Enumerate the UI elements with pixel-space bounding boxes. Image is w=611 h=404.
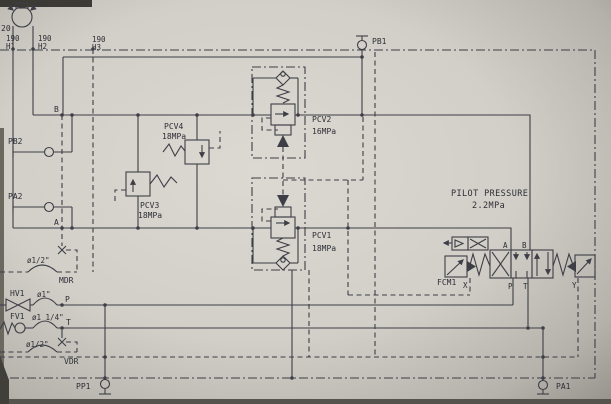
fitting-hv1-name: HV1 — [10, 289, 25, 298]
pilot-pressure-value: 2.2MPa — [472, 201, 505, 211]
fitting-fv1-size: ø1 1/4" — [32, 313, 64, 322]
pilot-pressure-title: PILOT PRESSURE — [451, 189, 528, 199]
port-pa2-label: PA2 — [8, 192, 23, 201]
fitting-fv1-name: FV1 — [10, 312, 25, 321]
port-pp1-label: PP1 — [76, 382, 91, 391]
hose-h2-id: H2 — [38, 42, 47, 51]
fcm1-port-a-label: A — [503, 241, 508, 250]
hydraulic-circuit-diagram: 20 190 H1 190 H2 190 H3 B A PB1 PB2 — [0, 0, 611, 404]
port-pb1-label: PB1 — [372, 37, 387, 46]
fitting-vdr-size: ø1/2" — [26, 340, 49, 349]
valve-fcm1-name: FCM1 — [437, 278, 456, 287]
valve-pcv3-setting: 18MPa — [138, 211, 162, 220]
t-line-label: T — [66, 318, 71, 327]
fitting-hv1-size: ø1" — [37, 290, 51, 299]
a-line-label: A — [54, 218, 59, 227]
fcm1-port-b-label: B — [522, 241, 527, 250]
port-pa1-label: PA1 — [556, 382, 571, 391]
valve-pcv3-name: PCV3 — [140, 201, 159, 210]
pump-size-label: 20 — [1, 24, 11, 33]
fitting-vdr-name: VDR — [64, 357, 79, 366]
fitting-mdr-name: MDR — [59, 276, 74, 285]
port-pb2-label: PB2 — [8, 137, 23, 146]
fcm1-port-p-label: P — [508, 282, 513, 291]
p-line-label: P — [65, 295, 70, 304]
hydraulic-schematic-photo: 20 190 H1 190 H2 190 H3 B A PB1 PB2 — [0, 0, 611, 404]
valve-pcv4-setting: 18MPa — [162, 132, 186, 141]
b-line-label: B — [54, 105, 59, 114]
valve-pcv2-name: PCV2 — [312, 115, 331, 124]
fcm1-port-t-label: T — [523, 282, 528, 291]
valve-pcv1-name: PCV1 — [312, 231, 331, 240]
fitting-mdr-size: ø1/2" — [27, 256, 50, 265]
valve-pcv4-name: PCV4 — [164, 122, 183, 131]
fcm1-port-x-label: X — [463, 281, 468, 290]
fcm1-port-y-label: Y — [572, 281, 577, 290]
valve-pcv2-setting: 16MPa — [312, 127, 336, 136]
valve-pcv1-setting: 18MPa — [312, 244, 336, 253]
